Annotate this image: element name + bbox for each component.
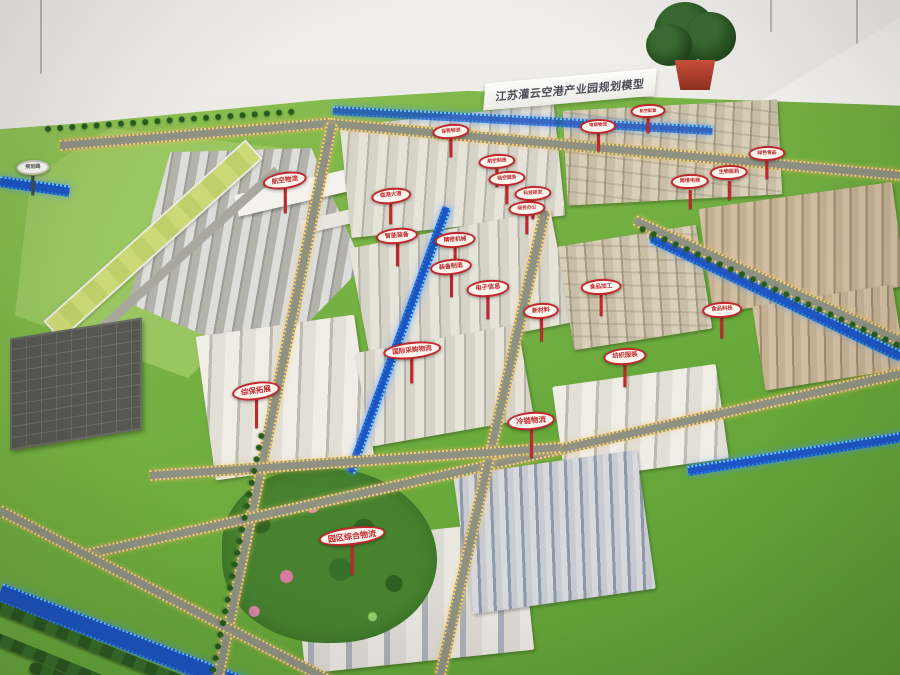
sign-post: [765, 161, 768, 179]
zone-sign-label: 绿色食品: [748, 145, 786, 161]
zone-sign: 生物医药: [710, 165, 748, 199]
sign-post: [530, 430, 533, 458]
zone-sign-label: 商务办公: [508, 200, 546, 217]
zone-sign: 跨境电商: [671, 174, 709, 208]
sign-post: [646, 118, 649, 133]
sign-post: [688, 190, 691, 209]
zone-sign-label: 航空物流: [262, 169, 308, 192]
zone-sign: 航空配套: [631, 104, 666, 133]
sign-post: [255, 400, 258, 428]
sign-post: [389, 204, 392, 224]
zone-sign: 综保拓展: [232, 382, 280, 428]
sign-post: [350, 545, 353, 575]
zone-sign-label: 智能装备: [375, 226, 418, 246]
sign-post: [539, 319, 542, 341]
zone-sign-label: 电商物流: [580, 119, 616, 135]
zone-sign: 电子信息: [466, 280, 509, 320]
zone-sign: 绿色食品: [748, 146, 785, 179]
sign-post: [395, 244, 398, 266]
potted-plant: [646, 2, 741, 94]
zone-sign-label: 精密机械: [434, 231, 476, 250]
zone-sign-label: 科技研发: [514, 185, 552, 202]
zone-sign: 规划路: [16, 160, 49, 194]
zone-sign: 国际采购物流: [383, 342, 441, 383]
zone-sign: 食品加工: [581, 279, 622, 316]
zone-sign-label: 装备制造: [429, 257, 472, 278]
plant-foliage: [684, 12, 736, 62]
zone-sign: 新材料: [523, 303, 559, 341]
zone-sign-label: 食品科技: [702, 301, 742, 319]
zone-sign-label: 新材料: [522, 302, 559, 321]
sign-post: [600, 295, 603, 316]
zone-sign: 电商物流: [580, 119, 616, 151]
zone-sign-label: 国际采购物流: [382, 339, 441, 362]
zone-sign-label: 临空服务: [488, 170, 526, 188]
zone-sign: 商务办公: [508, 201, 545, 234]
zone-sign: 智能装备: [376, 228, 418, 266]
zone-sign-label: 综保拓展: [231, 378, 281, 402]
zone-sign: 冷链物流: [507, 412, 555, 458]
sign-post: [525, 216, 528, 234]
sign-post: [597, 134, 600, 151]
zone-sign-label: 电子信息: [466, 278, 510, 298]
sign-post: [720, 318, 723, 338]
plant-foliage: [646, 24, 692, 66]
sign-post: [624, 364, 627, 387]
zone-sign-label: 航空配套: [630, 103, 665, 119]
zone-sign-label: 生物医药: [710, 165, 749, 182]
plant-pot: [672, 60, 718, 90]
zone-sign: 纺织服装: [603, 348, 646, 388]
zone-sign: 临港大道: [371, 188, 411, 224]
zone-sign: 食品科技: [702, 302, 742, 338]
zone-sign-label: 航空制造: [478, 153, 516, 171]
wall-corner-left: [40, 0, 42, 74]
sign-post: [31, 176, 34, 195]
zone-sign-label: 跨境电商: [671, 174, 710, 191]
zone-sign-label: 纺织服装: [603, 346, 647, 366]
sign-post: [411, 359, 414, 383]
zone-sign-label: 保税物流: [432, 122, 470, 140]
zone-sign-label: 临港大道: [371, 186, 412, 206]
airport-parking-lot: [10, 318, 142, 451]
zone-sign-label: 食品加工: [580, 278, 622, 296]
sign-post: [487, 296, 490, 319]
scale-model-photo: 航空物流临港大道智能装备精密机械装备制造电子信息新材料食品加工纺织服装国际采购物…: [0, 0, 900, 675]
sign-post: [284, 189, 287, 213]
sign-post: [449, 275, 452, 297]
zone-sign: 园区综合物流: [319, 527, 386, 575]
zone-sign-label: 冷链物流: [506, 410, 555, 432]
zone-sign-label: 规划路: [16, 160, 50, 176]
sign-post: [727, 181, 730, 200]
wall-corner-right-1: [770, 0, 772, 32]
sign-post: [449, 139, 452, 157]
zone-sign: 保税物流: [432, 124, 469, 157]
zone-sign: 航空物流: [263, 172, 307, 213]
